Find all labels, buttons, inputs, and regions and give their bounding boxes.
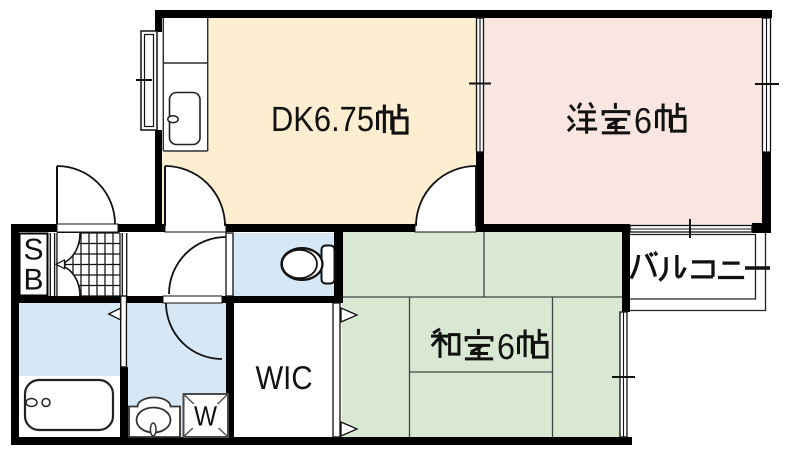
svg-text:6: 6 <box>634 100 652 141</box>
svg-text:W: W <box>194 401 217 432</box>
svg-text:B: B <box>23 264 43 297</box>
svg-text:6: 6 <box>497 326 515 367</box>
svg-text:DK6.75: DK6.75 <box>271 100 374 139</box>
svg-text:S: S <box>23 234 43 267</box>
svg-text:WIC: WIC <box>256 359 313 396</box>
